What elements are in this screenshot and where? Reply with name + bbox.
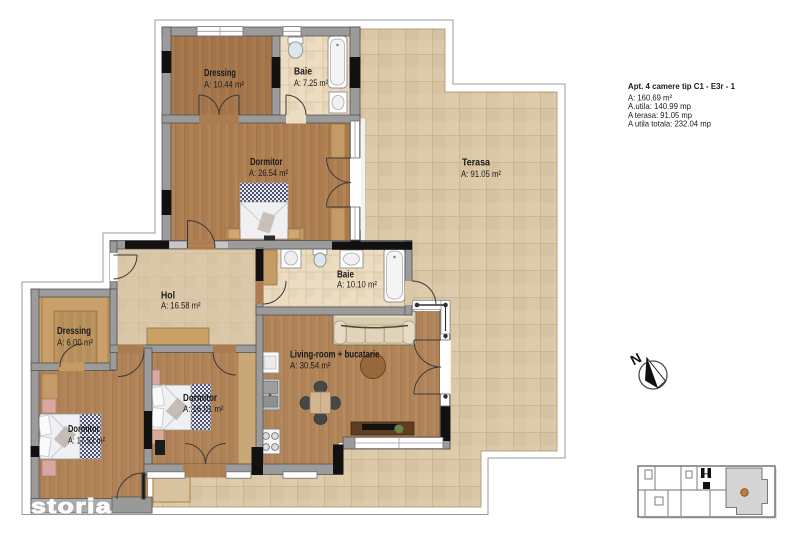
svg-text:Dressing: Dressing [57,326,91,337]
svg-text:A: 6.00 m²: A: 6.00 m² [57,338,93,349]
svg-text:Dressing: Dressing [204,68,236,79]
svg-text:A utila totala: 232.04 mp: A utila totala: 232.04 mp [628,119,711,129]
svg-text:Dormitor: Dormitor [250,157,283,168]
svg-text:A: 16.01 m²: A: 16.01 m² [183,404,224,415]
svg-text:A: 7.25 m²: A: 7.25 m² [294,78,328,89]
svg-text:A: 26.54 m²: A: 26.54 m² [249,168,288,179]
svg-text:A: 30.54 m²: A: 30.54 m² [290,361,331,372]
svg-text:A: 10.10 m²: A: 10.10 m² [337,280,377,291]
svg-text:Apt. 4 camere tip C1 - E3r -: Apt. 4 camere tip C1 - E3r - 1 [628,81,735,91]
svg-text:Dormitor: Dormitor [68,424,100,435]
svg-text:A: 10.44 m²: A: 10.44 m² [204,80,244,91]
svg-text:Dormitor: Dormitor [183,393,217,404]
svg-text:A: 16.58 m²: A: 16.58 m² [161,301,201,312]
svg-text:storia: storia [31,496,112,518]
svg-text:Terasa: Terasa [462,158,490,169]
svg-text:Baie: Baie [294,67,312,78]
svg-text:A: 91.05 m²: A: 91.05 m² [461,169,501,180]
svg-text:Living-room + bucatarie: Living-room + bucatarie [290,350,380,361]
svg-text:A: 17.53 m²: A: 17.53 m² [68,436,105,447]
